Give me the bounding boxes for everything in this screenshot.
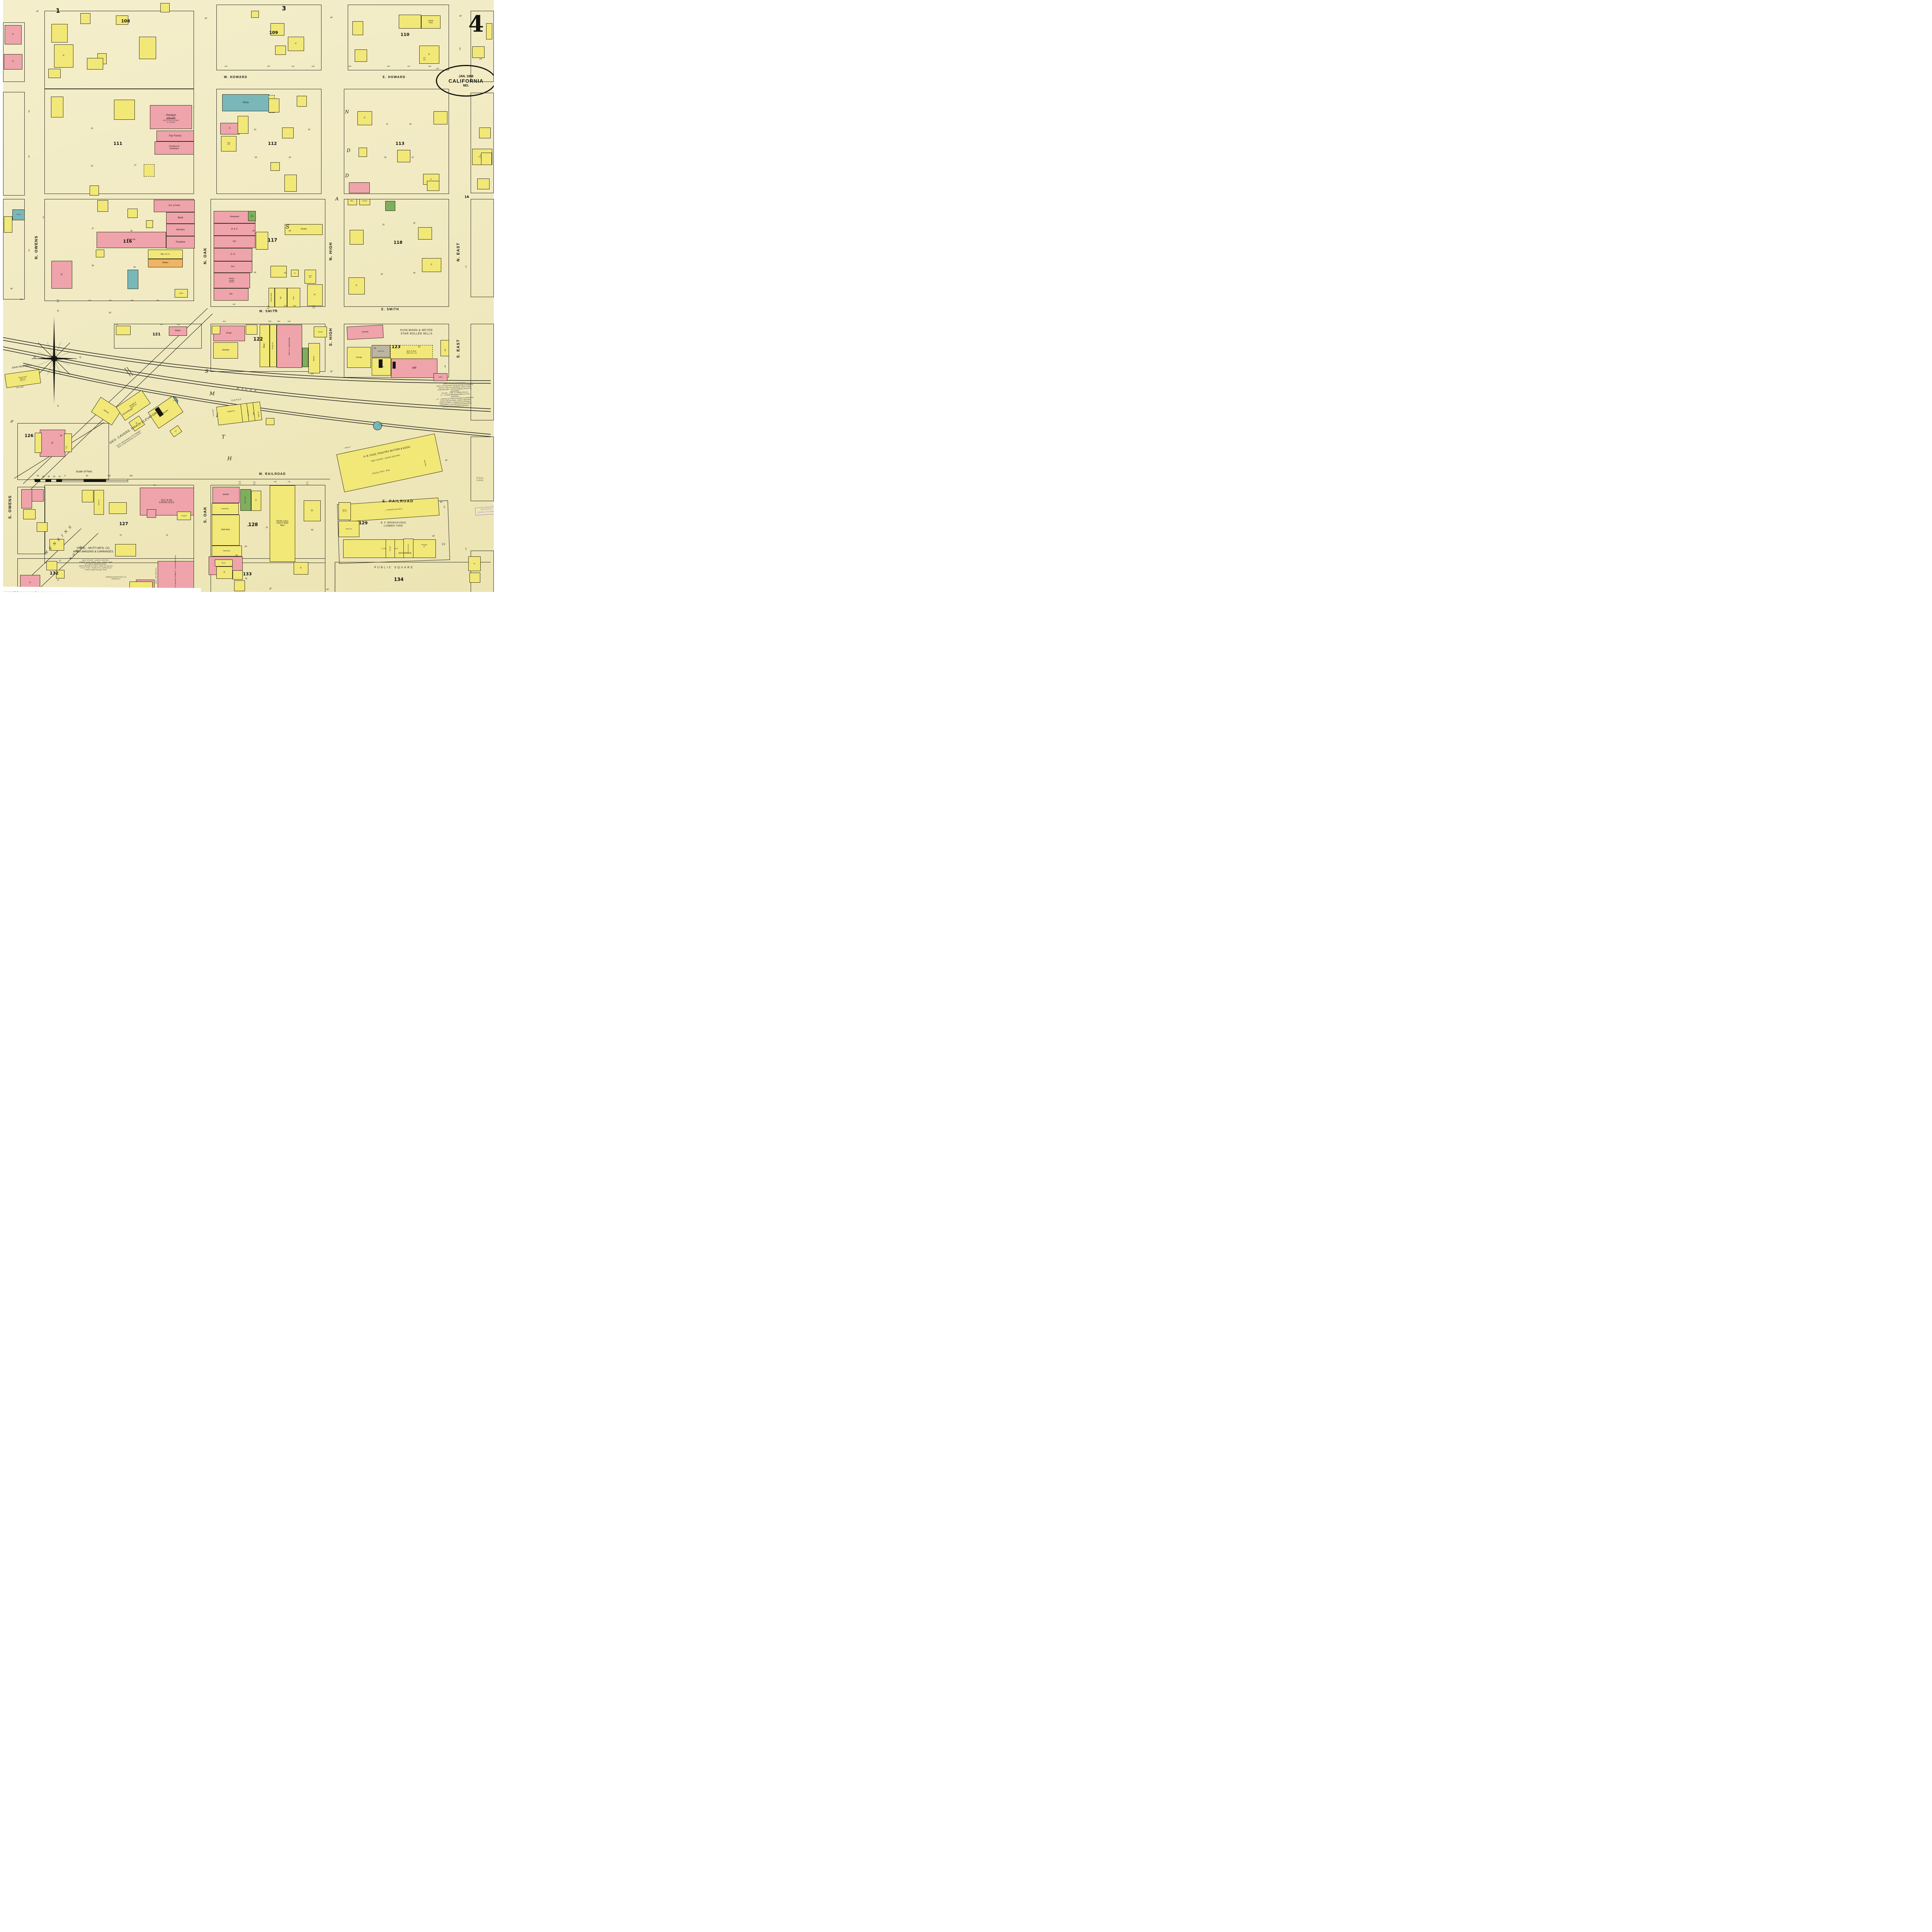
building-label-line: W. Ho. (342, 511, 347, 513)
label-line: 101 (224, 65, 228, 68)
label-line: 27 (134, 164, 136, 167)
label-line: Plumber (362, 200, 367, 202)
shed (48, 69, 61, 78)
dim: 50' (10, 421, 13, 423)
building-label-line: D. (314, 294, 316, 296)
building-label-line: Bank (178, 217, 183, 219)
label-line: 109 (269, 30, 278, 36)
label-line: 117 (267, 238, 277, 243)
label-line: GASOL. TANK UNDER GR'D. (155, 568, 157, 584)
lot: 29 (289, 156, 291, 159)
label-line: 107 (284, 305, 287, 307)
label-line: 220 (459, 47, 461, 50)
dwelling: D. (216, 566, 233, 579)
shed (46, 561, 57, 570)
office-116: Office (175, 289, 188, 298)
label-line: 110 (401, 32, 410, 37)
smith-m: M (209, 391, 214, 397)
label-line: 513 (177, 323, 180, 326)
clothing: Clo. (214, 236, 255, 248)
label-line: 1A (464, 195, 469, 199)
label-line: 504 (109, 299, 112, 302)
street-w-railroad: W. RAILROAD (259, 472, 286, 476)
plumber-office: Office (350, 200, 354, 202)
label-line: 60' (269, 588, 272, 590)
label-line: H (227, 456, 231, 462)
tank-label-2: R. R.W. TANK (378, 423, 383, 426)
scan-margin-left (0, 0, 3, 592)
building-label: L U M B E R S H E D (385, 508, 402, 511)
building-label: Photo (243, 102, 249, 104)
building-label: D. (229, 128, 231, 129)
label-line: 43 (413, 272, 415, 274)
building-label-line: D. G. (231, 253, 236, 256)
addr: 104 (311, 65, 315, 68)
building-label-line: L U M B E R S H E D (385, 508, 402, 511)
boots-shoes: B. & S. (214, 223, 255, 236)
shed (51, 97, 63, 117)
label-line: S. HIGH (329, 328, 334, 346)
store (21, 489, 32, 509)
addr: 712116 (306, 481, 309, 485)
lot: 25 (91, 128, 93, 130)
grocery-2: Gro. (287, 288, 300, 307)
label-line: 15' TO EAVES (163, 121, 179, 123)
label-line: 118 (394, 240, 403, 245)
label-line: 50 (86, 475, 88, 477)
building-label: D. (61, 274, 63, 276)
building-label-line: Barber (162, 262, 168, 264)
label-line: 516 (268, 320, 271, 323)
label-line: 35 (252, 230, 255, 232)
building-label-line: D. (295, 43, 297, 45)
restaurant-133: Restr't (215, 560, 233, 566)
ware-house-129: Ware Ho. (338, 521, 359, 537)
building-label-line: D. (224, 571, 226, 573)
addr: 204 (444, 365, 446, 367)
label-line: 707 (153, 484, 156, 486)
building-label-line: Restr't (222, 562, 226, 564)
label-line: 77 (247, 525, 249, 527)
block-128: 128 (248, 522, 258, 528)
building-label: Off. (174, 430, 177, 433)
addr: 100 (277, 320, 280, 323)
label-line: N. OWENS (34, 235, 39, 259)
scale-ticks: 0 (65, 475, 66, 477)
shed (82, 490, 94, 502)
label-line: 29 (289, 156, 291, 159)
lot: 37 (92, 228, 94, 230)
block-outline (471, 93, 494, 193)
label-line: 30 (384, 156, 386, 159)
dwelling: D. (349, 277, 365, 294)
building-label-line: Storage (362, 331, 369, 333)
shed (90, 185, 99, 196)
mill: Mill (391, 359, 437, 378)
label-line: 507 (233, 303, 236, 306)
building-label-line: Restr't. (229, 281, 235, 283)
block-126: 126 (25, 433, 34, 439)
vacant-house: Vacant (12, 209, 25, 220)
building-label: Milly. 1R.CL. (160, 253, 170, 255)
dwelling: D. (54, 44, 73, 68)
lot: 13 (57, 579, 59, 582)
building-label: Sal. (229, 293, 233, 296)
building-label: oil (294, 272, 296, 274)
saloon-2: Sal. (275, 288, 287, 307)
addr: 107 (407, 65, 410, 68)
scale-ticks: 10 (58, 476, 61, 478)
label-line: 26 (91, 165, 93, 167)
shed (4, 216, 12, 233)
shed (269, 99, 279, 112)
lot: 75 (119, 534, 122, 537)
label-line: 40' (36, 10, 39, 13)
label-line: 106 (253, 483, 256, 485)
shed (355, 49, 367, 62)
shed (64, 434, 72, 452)
building-label-line: D. (474, 563, 476, 565)
harness: Harness (166, 224, 195, 236)
scale-ticks: 50 (37, 475, 39, 477)
building-label: Cobbler (181, 515, 187, 517)
label-line: 95 (245, 578, 247, 580)
building-label-line: Office (179, 293, 183, 294)
cement-lime-shed: Cement & Lime (403, 539, 413, 558)
label-line: 12 (59, 560, 61, 562)
scale-ticks: 50 (86, 475, 88, 477)
kuhlmann-title: KUHLMANN & MEYERSTAR ROLLER MILLS (400, 329, 433, 336)
label-line: 40 (42, 476, 44, 478)
addr: 504 (109, 299, 112, 302)
building-label: Cement (389, 546, 391, 551)
building-label: D.G. & Clo.6 IRON COLS. (159, 499, 175, 504)
lot: 30 (384, 156, 386, 159)
building-label: Ware Ho. (98, 499, 100, 505)
label-line: 60' (109, 312, 112, 314)
label-line: 505 (131, 299, 134, 302)
hardware-128: Hardw. (213, 487, 240, 503)
building-label: Barber (175, 330, 181, 332)
label-line: 60' (205, 17, 207, 20)
label-line: 113 (396, 141, 405, 146)
addr: 513 (177, 323, 180, 326)
addr: 710 (274, 481, 277, 483)
building-label-line: Shooting Gallery (271, 293, 272, 302)
label-line: 123 (392, 344, 401, 350)
building-label: Carriage Repository & Trimming & Paintin… (175, 555, 177, 592)
addr: 108 (428, 65, 431, 68)
storage-room: Storage Rm. (270, 325, 277, 367)
mill-notes: CAPCY. OF MILL 250 BARRELS -CAPCY. OF EL… (436, 382, 475, 408)
label-line: 33 (382, 224, 384, 226)
street-line (124, 368, 131, 376)
label-line: I (216, 413, 218, 419)
lot: 36 (130, 230, 133, 232)
building-label: D. (311, 510, 313, 512)
label-line: 76 (166, 534, 168, 537)
street-n-owens: N. OWENS (34, 235, 39, 259)
label-line: N. EAST (456, 242, 461, 261)
building-label-line: D. (364, 117, 366, 119)
building-label-line: Carpr. Shop (245, 496, 247, 503)
addr: 507 (233, 303, 236, 306)
building-label-line: Hardware (230, 216, 239, 218)
label-line: 50 (37, 475, 39, 477)
addn-d1: D (345, 173, 349, 179)
label-line: 36 (130, 230, 133, 232)
addr: 105 (293, 305, 296, 307)
mill-engine (393, 362, 396, 369)
building-label-line: Meat (264, 344, 265, 348)
label-line: 216 (465, 265, 467, 268)
addr: 101 (224, 65, 228, 68)
library-stamp: Map Division Library of Congress (475, 506, 494, 515)
dim: 40' (10, 288, 13, 290)
ware-house-117: WareHo. (304, 270, 316, 284)
label-line: 65 (418, 346, 420, 348)
street-w-howard: W. HOWARD (224, 75, 248, 79)
building-label: Gen'l. S. 4 Wood Posts (289, 337, 291, 355)
building-label: Pop Factory (169, 135, 181, 137)
stock-yards: STOCKYARDS (476, 477, 484, 481)
building-label: Hardware (230, 216, 239, 218)
block-1: 1 (56, 7, 60, 15)
oil-house: oil (291, 270, 299, 277)
label-line: 40 (254, 272, 256, 274)
bank: Bank (166, 212, 195, 224)
building-label-line: Office (439, 376, 442, 378)
label-line: 60' (327, 588, 329, 591)
label-line: 512 (160, 323, 163, 326)
building-label: Restr't (222, 562, 226, 564)
label-line: 514 (223, 320, 226, 323)
label-line: 122 (253, 337, 263, 342)
label-line: B. F. BROKHAUSEN (381, 522, 406, 525)
label-line: D (345, 173, 349, 179)
lot: 33 (382, 224, 384, 226)
block-112: 112 (268, 141, 277, 146)
dim: 60' (269, 588, 272, 590)
lot: 34 (289, 230, 291, 232)
label-line: 3 (282, 5, 286, 12)
label-line: 133 (243, 571, 252, 577)
addr: 106 (387, 65, 390, 68)
label-line: 132 (50, 571, 59, 576)
building-label-line: Shop (428, 22, 434, 24)
label-line: 105 (348, 65, 351, 68)
block-1a: 1A (464, 195, 469, 199)
label-line: N (57, 310, 59, 313)
building-label: Gro. (231, 266, 235, 268)
addr: 201 (443, 505, 446, 508)
scale-ticks: 40 (42, 476, 44, 478)
lot: 78 (265, 527, 268, 529)
building-label: D. (255, 500, 257, 502)
building-label: D. (29, 582, 31, 584)
lot: 39 (133, 266, 136, 269)
shed (51, 24, 68, 43)
building-label: Barber (162, 262, 168, 264)
shed (275, 46, 286, 55)
church-notes: HEAT: STOVESLIGHTS: COAL OIL LAMPS15' TO… (163, 118, 179, 123)
label-line: 107 (407, 65, 410, 68)
shed (246, 325, 257, 335)
addr: 105 (348, 65, 351, 68)
building-label-line: D. (29, 582, 31, 584)
label-line: S. OWENS (8, 495, 13, 519)
building-label: TinShop (250, 215, 253, 218)
dwelling: D. (220, 123, 240, 134)
label-line: 42 (381, 273, 383, 276)
label-line: W. TANK (378, 424, 383, 426)
building-label-line: Barn (276, 525, 289, 527)
label-line: 201 (443, 505, 446, 508)
shed (472, 46, 485, 58)
building-label: D. (429, 54, 430, 56)
addr: 708104 (238, 481, 241, 485)
dim: 60' (330, 17, 333, 19)
building-label-line: D. (61, 274, 63, 276)
building-label-line: Sal. (229, 293, 233, 296)
label-line: W. TANK. (173, 400, 179, 401)
label-line: A (335, 196, 339, 202)
label-line: N. HIGH (329, 242, 334, 260)
building-label-line: Ware Ho. (346, 528, 352, 530)
building-label: Notions,Confec.Restr't. (229, 278, 235, 283)
label-line: 100 (277, 320, 280, 323)
shed (481, 153, 492, 165)
label-line: 80 (311, 529, 313, 531)
label-line: 31 (412, 156, 414, 159)
label-line: 22 (308, 129, 310, 131)
building-label-line: D. (63, 55, 65, 57)
cobbler: Cobbler (177, 512, 191, 520)
dwelling: D. (40, 430, 65, 457)
label-line: 20 (53, 476, 55, 478)
addr: 102 (267, 65, 270, 68)
building-label: Storage (356, 357, 362, 359)
dwelling: D. (5, 25, 22, 44)
addr: 503 (88, 299, 91, 302)
label-line: 116 (123, 239, 132, 244)
street-e-smith: E. SMITH (381, 308, 399, 311)
building-label: MarbleShop (428, 20, 434, 24)
block-123: 123 (392, 344, 401, 350)
block-outline (3, 92, 25, 196)
label-line: E (80, 356, 81, 359)
block-116: 116 (123, 239, 132, 244)
lot: 31 (412, 156, 414, 159)
smith-t: T (222, 434, 225, 440)
building-label-line: Photo (243, 102, 249, 104)
label-line: 104 (311, 65, 315, 68)
shed (418, 227, 432, 240)
label-line: STOCK (476, 477, 484, 479)
building-label-line: D. (311, 510, 313, 512)
shed (350, 230, 364, 245)
building-label-line: Furniture (176, 241, 185, 243)
dwelling: D. (307, 284, 323, 306)
sack-room: Sack Rm. (372, 345, 390, 357)
label-line: 105 (293, 305, 296, 307)
building-label-line: Sack Rm. (378, 350, 384, 352)
building-label: Mill (412, 367, 417, 370)
label-line: 106 (387, 65, 390, 68)
lot: 26 (91, 165, 93, 167)
label-line: N (345, 109, 349, 115)
building-label-line: Hardware (169, 148, 179, 150)
label-line: 104 (238, 483, 241, 485)
building-label-line: Hardw. (223, 494, 229, 496)
building-label-line: Cobbler (181, 515, 187, 517)
block-outline (471, 437, 494, 501)
building-label-line: Ho. (308, 277, 312, 278)
shed (486, 23, 492, 39)
building-label: Bran & FlourWare Ho. 1st (406, 350, 417, 354)
building-label-line: Gro. (293, 296, 295, 299)
street-e-howard: E. HOWARD (383, 75, 405, 79)
restaurant-122: Restr't. (308, 343, 320, 373)
shed (477, 179, 490, 189)
lot: 43 (413, 272, 415, 274)
label-line: 38 (92, 265, 94, 267)
lot: 94 (245, 546, 247, 548)
building-label-line: D. (51, 442, 54, 444)
addr: 205 (479, 58, 482, 60)
label-line: 108 (121, 19, 130, 24)
label-line: 128 (248, 522, 258, 528)
block-outline (216, 5, 321, 70)
label-line: 34 (289, 230, 291, 232)
label-line: 60' (440, 501, 443, 503)
label-line: PUBLIC SQUARE (374, 566, 414, 570)
building-label: Shooting Gallery (271, 293, 272, 302)
label-line: 127 (119, 521, 128, 527)
building-label-line: Shop (250, 216, 253, 217)
compass-s: S (57, 405, 59, 408)
store (147, 509, 156, 518)
addr: 506 (156, 299, 159, 302)
building-label: D. G. (231, 253, 236, 256)
shed (115, 544, 136, 556)
label-line: 23 (254, 129, 256, 131)
building-label: Furniture &Hardware (169, 146, 179, 150)
jewelry: Jewelry (213, 342, 238, 359)
shed (37, 522, 48, 532)
addr: 516 (268, 320, 271, 323)
label-line: 37 (92, 228, 94, 230)
building-label-line: Gro. & Feed (168, 205, 180, 207)
mill-storage-1: Storage (347, 325, 384, 340)
shooting-gallery: Shooting Gallery (269, 288, 275, 307)
label-line: 214 (465, 547, 467, 550)
carpenter-shop: Carpr. Shop (240, 489, 251, 511)
cement-shed: Cement (386, 539, 395, 558)
shed (116, 326, 131, 335)
building-label-line: D. (300, 567, 302, 569)
building-partition (240, 404, 243, 422)
oyster-house (302, 348, 308, 367)
shed (233, 570, 243, 580)
label-line: W. HOWARD (224, 75, 248, 79)
label-line: 121 (153, 332, 161, 337)
addr: 205 (444, 349, 446, 351)
label-line: 102 (267, 65, 270, 68)
label-line: 509 (274, 309, 277, 311)
feed-room-1: Feed Rm. (212, 503, 239, 515)
addr: 505 (131, 299, 134, 302)
